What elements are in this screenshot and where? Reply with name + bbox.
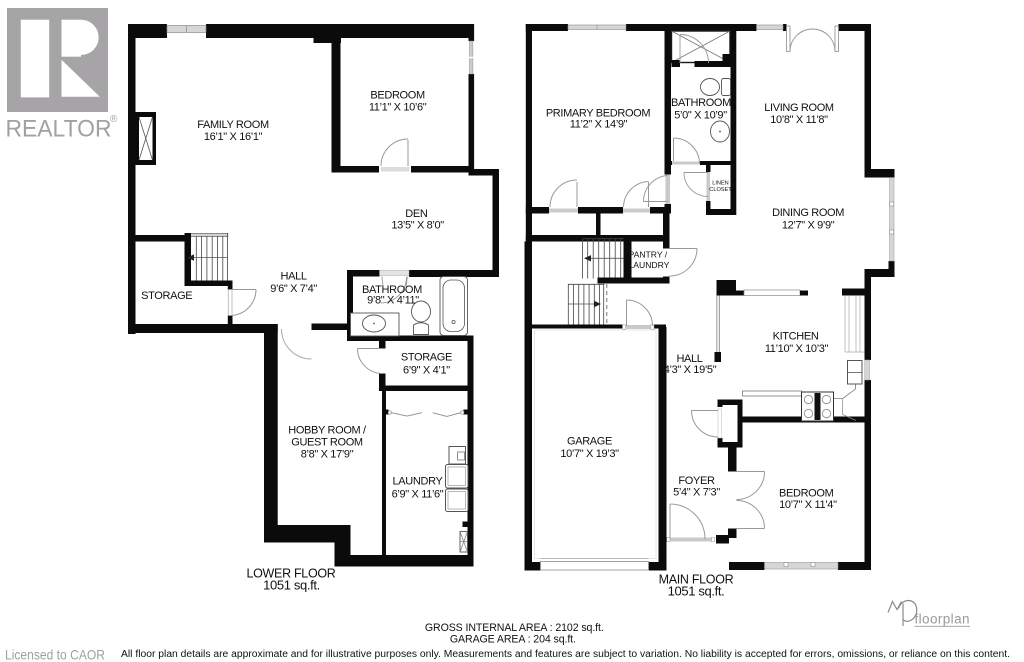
svg-text:PRIMARY BEDROOM: PRIMARY BEDROOM (546, 107, 651, 119)
svg-text:10’7" X 11’4": 10’7" X 11’4" (779, 499, 837, 511)
svg-text:LINEN: LINEN (712, 181, 728, 187)
svg-text:HALL: HALL (676, 353, 702, 365)
svg-text:DEN: DEN (405, 208, 428, 220)
svg-text:10’7" X 19’3": 10’7" X 19’3" (560, 448, 619, 460)
svg-text:Licensed to CAOR: Licensed to CAOR (5, 647, 105, 662)
svg-text:®: ® (110, 114, 118, 125)
svg-text:11’2" X 14’9": 11’2" X 14’9" (570, 119, 628, 131)
svg-text:LAUNDRY: LAUNDRY (629, 260, 670, 270)
svg-text:1051 sq.ft.: 1051 sq.ft. (668, 584, 725, 599)
svg-text:DINING ROOM: DINING ROOM (772, 207, 844, 219)
svg-text:PANTRY /: PANTRY / (629, 250, 668, 260)
svg-text:STORAGE: STORAGE (141, 290, 192, 302)
svg-text:FOYER: FOYER (678, 475, 715, 487)
svg-text:HOBBY ROOM /: HOBBY ROOM / (288, 425, 367, 437)
svg-text:10’8" X 11’8": 10’8" X 11’8" (770, 114, 828, 126)
svg-text:GROSS INTERNAL AREA : 2102 sq.: GROSS INTERNAL AREA : 2102 sq.ft. (425, 622, 604, 634)
svg-text:13’5" X 8’0": 13’5" X 8’0" (391, 220, 444, 232)
svg-text:4’3" X 19’5": 4’3" X 19’5" (664, 364, 717, 376)
svg-text:KITCHEN: KITCHEN (773, 330, 819, 342)
svg-text:BATHROOM: BATHROOM (671, 97, 731, 109)
svg-text:8’8" X 17’9": 8’8" X 17’9" (301, 449, 354, 461)
svg-text:FAMILY ROOM: FAMILY ROOM (197, 119, 269, 131)
svg-text:GARAGE AREA : 204 sq.ft.: GARAGE AREA : 204 sq.ft. (450, 634, 576, 646)
svg-text:LIVING ROOM: LIVING ROOM (764, 102, 834, 114)
svg-text:9’8" X 4’11": 9’8" X 4’11" (367, 295, 419, 307)
svg-text:11’1" X 10’6": 11’1" X 10’6" (369, 102, 427, 114)
svg-text:9’6" X 7’4": 9’6" X 7’4" (270, 283, 317, 295)
svg-text:GARAGE: GARAGE (567, 436, 612, 448)
svg-text:6’9" X 4’1": 6’9" X 4’1" (403, 365, 450, 377)
svg-text:STORAGE: STORAGE (401, 352, 452, 364)
svg-text:LAUNDRY: LAUNDRY (393, 476, 444, 488)
svg-text:BEDROOM: BEDROOM (779, 488, 834, 500)
svg-text:CLOSET: CLOSET (709, 187, 732, 193)
svg-text:All floor plan details are app: All floor plan details are approximate a… (121, 649, 1010, 660)
svg-text:floorplan: floorplan (915, 612, 970, 627)
svg-text:5’0" X 10’9": 5’0" X 10’9" (674, 110, 727, 122)
svg-text:BEDROOM: BEDROOM (370, 90, 425, 102)
svg-text:16’1" X 16’1": 16’1" X 16’1" (204, 131, 263, 143)
svg-text:6’9" X 11’6": 6’9" X 11’6" (392, 489, 444, 501)
svg-text:12’7" X 9’9": 12’7" X 9’9" (782, 219, 835, 231)
svg-text:11’10" X 10’3": 11’10" X 10’3" (765, 343, 829, 355)
svg-text:REALTOR: REALTOR (6, 116, 112, 143)
svg-text:GUEST ROOM: GUEST ROOM (291, 437, 363, 449)
svg-text:5’4" X 7’3": 5’4" X 7’3" (673, 487, 720, 499)
svg-text:HALL: HALL (281, 271, 307, 283)
svg-text:1051 sq.ft.: 1051 sq.ft. (263, 578, 320, 593)
